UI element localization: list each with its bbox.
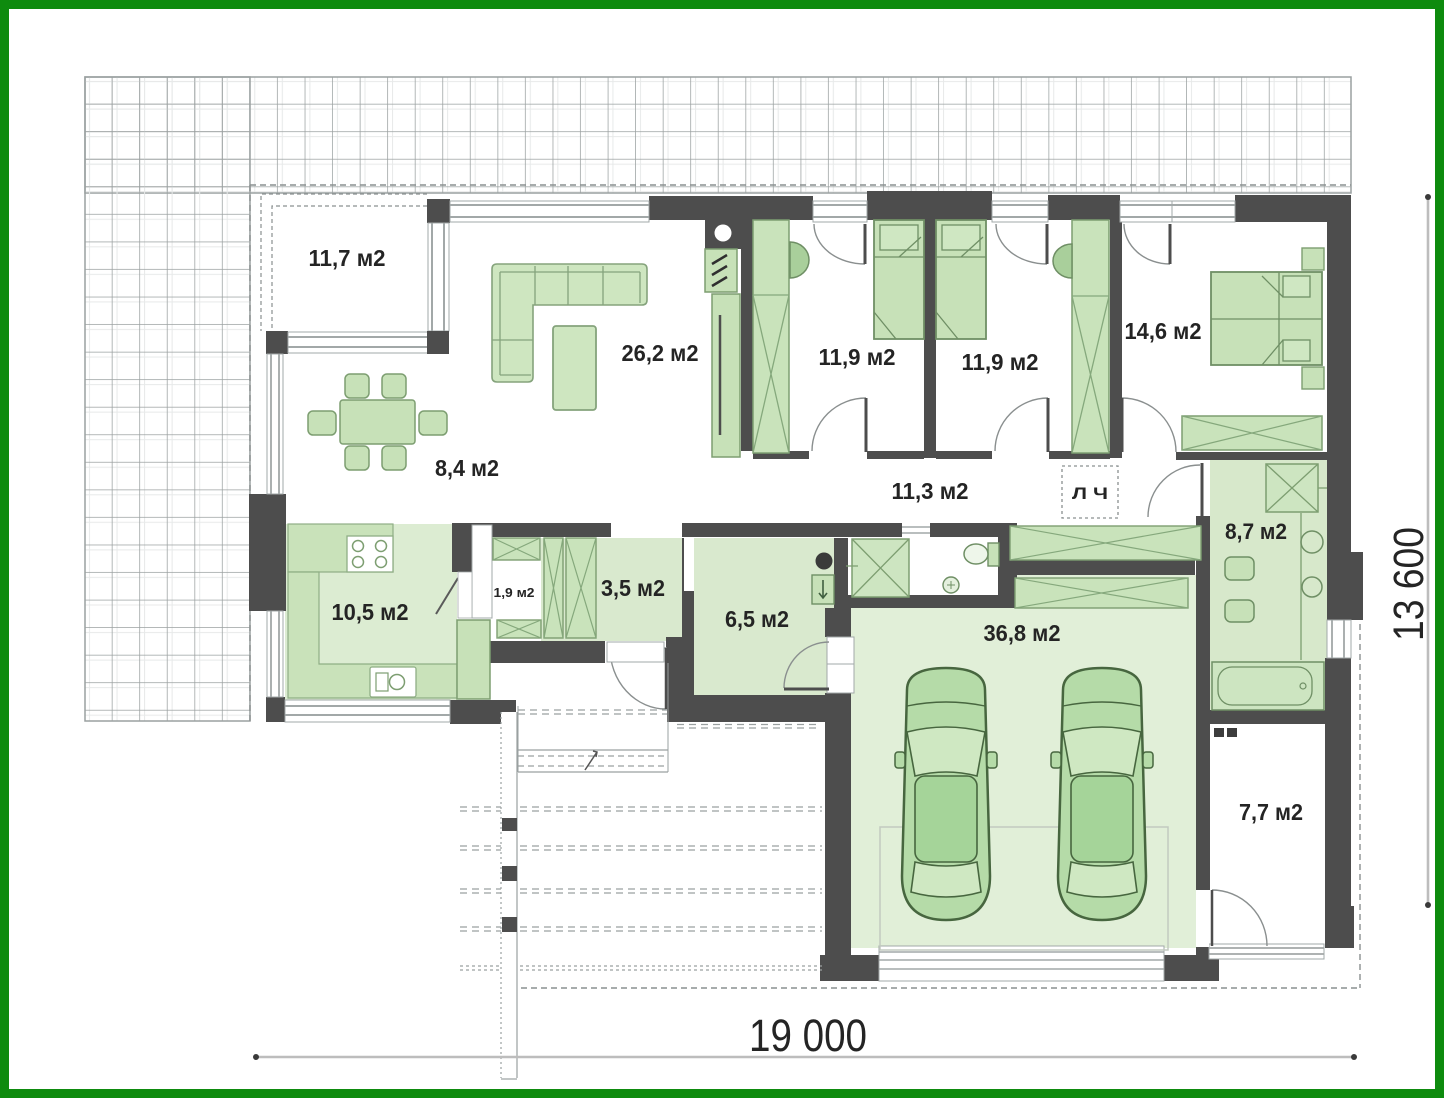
svg-text:1,9 м2: 1,9 м2: [494, 585, 535, 600]
svg-text:19 000: 19 000: [749, 1010, 867, 1061]
svg-text:7,7 м2: 7,7 м2: [1239, 799, 1303, 825]
svg-text:11,7 м2: 11,7 м2: [309, 245, 386, 271]
svg-text:14,6 м2: 14,6 м2: [1125, 318, 1202, 344]
svg-text:8,7 м2: 8,7 м2: [1225, 519, 1287, 544]
svg-text:8,4 м2: 8,4 м2: [435, 455, 499, 481]
svg-text:36,8 м2: 36,8 м2: [984, 620, 1061, 646]
svg-text:3,5 м2: 3,5 м2: [601, 575, 665, 601]
svg-text:11,9 м2: 11,9 м2: [819, 344, 896, 370]
svg-text:Л Ч: Л Ч: [1072, 484, 1108, 503]
svg-text:11,9 м2: 11,9 м2: [962, 349, 1039, 375]
svg-text:11,3 м2: 11,3 м2: [892, 478, 969, 504]
svg-text:6,5 м2: 6,5 м2: [725, 606, 789, 632]
svg-text:26,2 м2: 26,2 м2: [622, 340, 699, 366]
svg-text:10,5 м2: 10,5 м2: [332, 599, 409, 625]
svg-text:13 600: 13 600: [1385, 527, 1433, 641]
